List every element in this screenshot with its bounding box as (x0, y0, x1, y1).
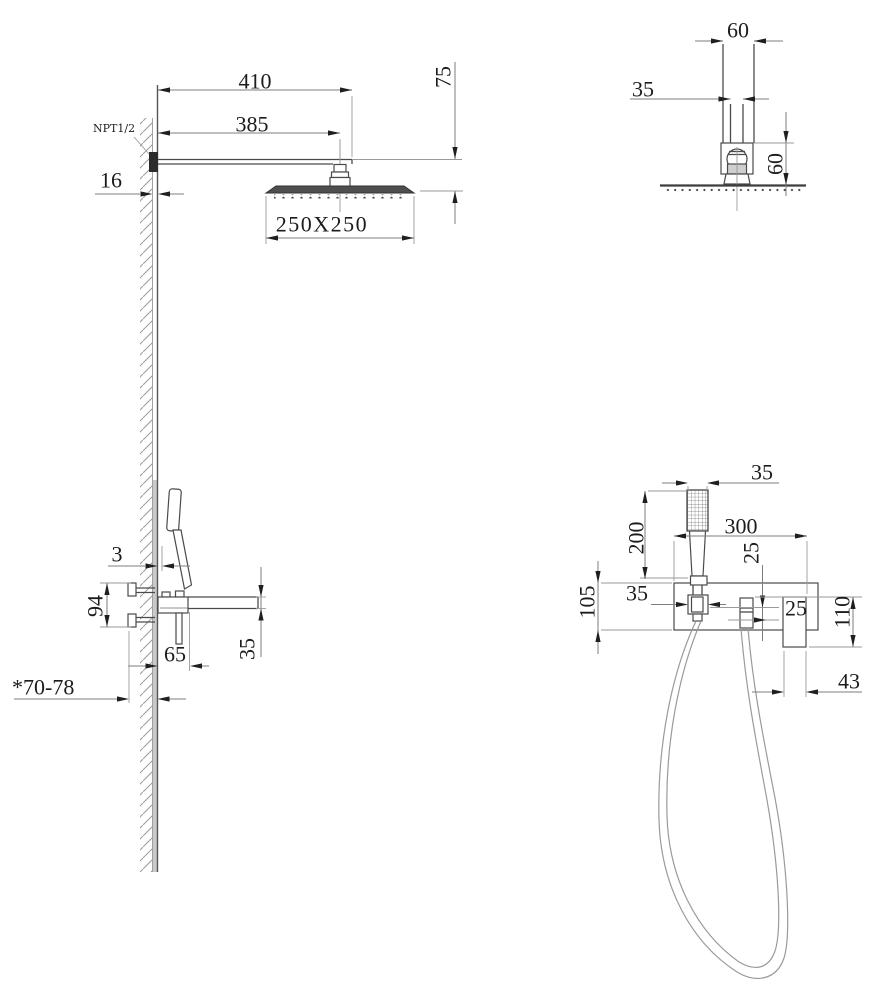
nozzle-dots-front (663, 188, 803, 192)
diverter-knob (740, 598, 753, 628)
dim-head-clearance: 60 (754, 112, 794, 196)
wall-band (153, 480, 158, 872)
handle-lever (167, 489, 192, 589)
wall-section: NPT1/2 (93, 85, 158, 872)
dim-arm-width: 60 (695, 18, 783, 44)
hand-shower-handle (690, 531, 706, 576)
dim-60-side-label: 60 (763, 153, 788, 175)
nozzle-dots (274, 195, 407, 199)
dim-handset-height: 200 (624, 491, 689, 579)
dim-105-label: 105 (575, 586, 600, 619)
dim-arm-to-center: 385 (158, 112, 340, 164)
shower-arm (158, 160, 462, 165)
head-plate-front (660, 186, 806, 192)
dim-410-label: 410 (239, 69, 272, 94)
hose-outlet-stub (693, 614, 702, 621)
dim-spout-height: 35 (235, 567, 267, 660)
holder-clip (691, 576, 708, 585)
shower-head-plate (266, 186, 414, 199)
view-rain-shower-side: NPT1/2 410 (93, 62, 463, 872)
shower-system-technical-drawing: NPT1/2 410 (0, 0, 875, 1000)
dim-35-spout-label: 35 (235, 638, 260, 660)
dim-200-label: 200 (624, 522, 649, 555)
arm-front (723, 44, 754, 149)
hand-shower (687, 490, 708, 597)
dim-385-label: 385 (236, 112, 269, 137)
npt-thread-label: NPT1/2 (93, 122, 135, 135)
dim-65-label: 65 (164, 642, 186, 667)
dim-handset-width: 35 (662, 460, 779, 493)
dim-connector-width: 35 (630, 77, 769, 102)
valve-body (158, 591, 188, 644)
shower-hose (659, 621, 788, 978)
dim-wall-thickness: 16 (95, 168, 184, 197)
handle-grip (167, 489, 182, 532)
drawing-canvas: NPT1/2 410 (0, 0, 875, 1000)
dim-75-label: 75 (431, 66, 456, 88)
dim-35-front-label: 35 (632, 77, 654, 102)
view-rain-shower-front: 60 35 60 (630, 18, 806, 212)
dim-25-inset-label: 25 (785, 596, 807, 621)
view-mixer-side: 94 3 65 35 (12, 489, 266, 703)
dim-elbow-width: 43 (752, 651, 862, 697)
lever-shaft (173, 530, 192, 589)
ball-joint (721, 143, 753, 211)
dim-35-holder-label: 35 (626, 581, 648, 606)
dim-inlet-span: 94 (83, 583, 132, 627)
npt-inlet-connector (149, 152, 158, 172)
dim-16-label: 16 (100, 168, 122, 193)
spout (188, 597, 258, 609)
dim-embed-depth-label: *70-78 (12, 675, 74, 700)
hand-shower-head (687, 490, 708, 531)
dim-25-vertical-label: 25 (739, 542, 764, 564)
dim-3-label: 3 (112, 542, 123, 567)
dim-300-label: 300 (725, 514, 758, 539)
dim-plate-height: 105 (575, 561, 673, 654)
dim-43-label: 43 (838, 669, 860, 694)
dim-35-handset-label: 35 (751, 460, 773, 485)
dim-250x250-label: 250X250 (276, 212, 368, 237)
dim-60-top-label: 60 (727, 18, 749, 43)
valve-cartridge (158, 597, 188, 613)
dim-110-label: 110 (830, 596, 855, 628)
wall-hatch (140, 118, 153, 872)
dim-embed-depth: *70-78 (12, 631, 186, 703)
dim-94-label: 94 (83, 595, 108, 617)
view-mixer-front: 35 200 300 105 (575, 460, 863, 979)
drop-outlet (176, 613, 182, 644)
dim-head-drop: 75 (420, 62, 463, 224)
